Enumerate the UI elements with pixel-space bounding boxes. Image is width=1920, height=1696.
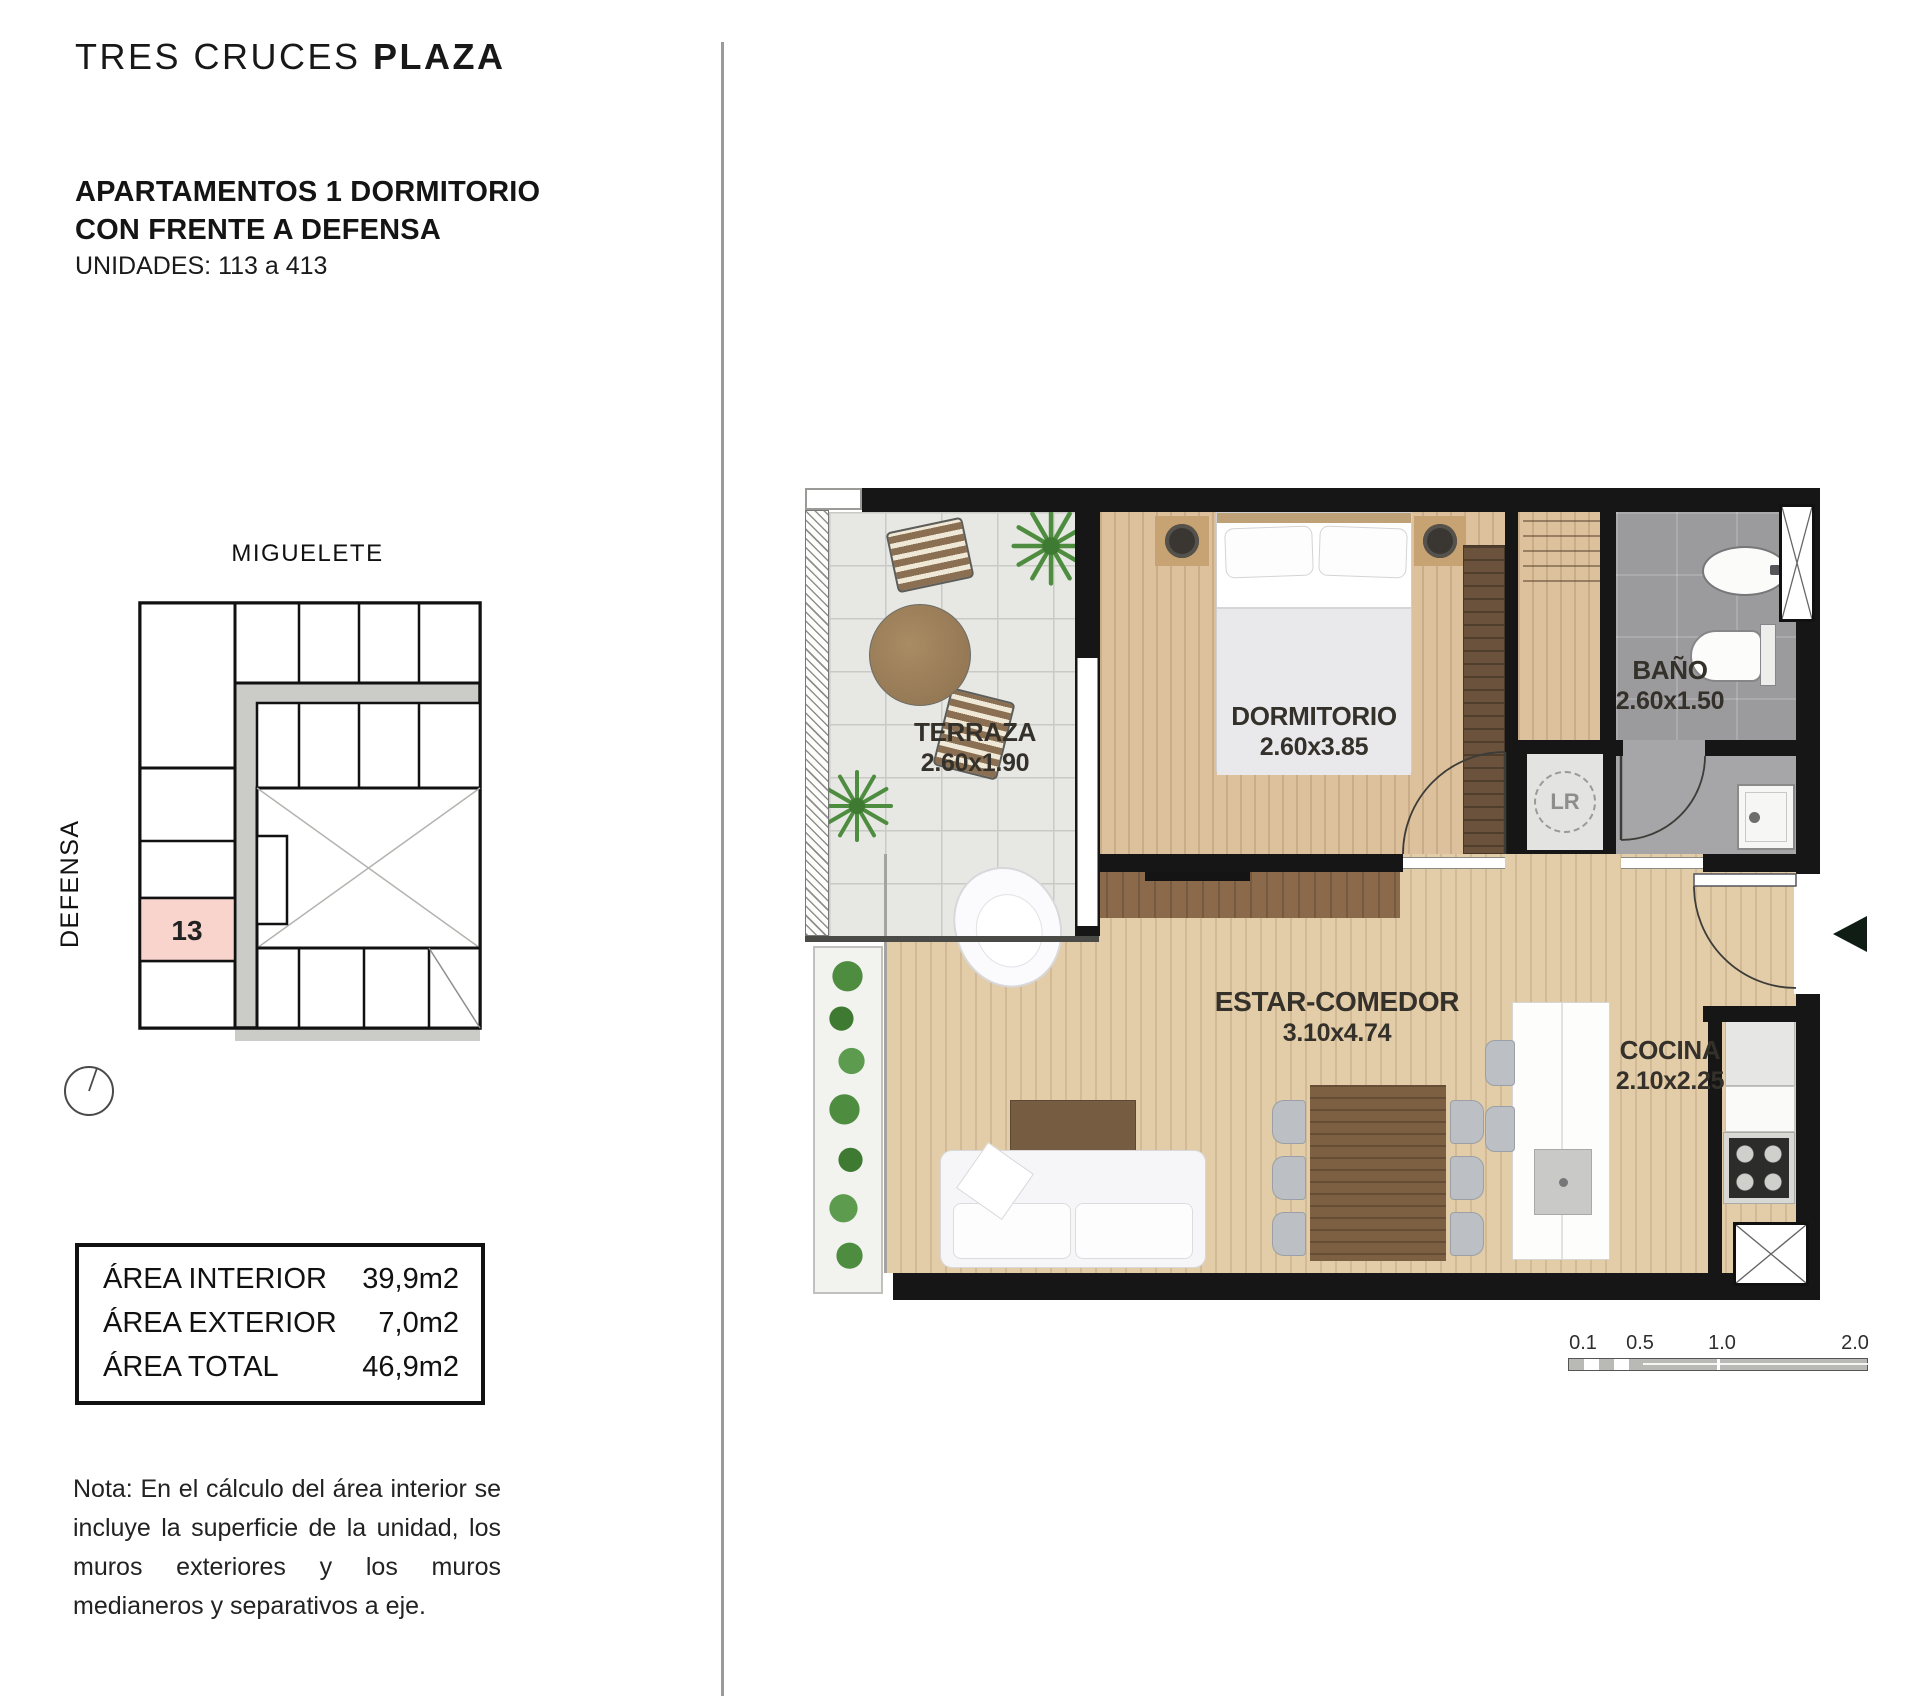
- brand-logo: TRES CRUCES PLAZA: [75, 36, 506, 78]
- dining-chair: [1272, 1156, 1306, 1200]
- planter: [813, 946, 883, 1294]
- area-value: 46,9m2: [362, 1345, 459, 1389]
- sink: [1702, 546, 1788, 596]
- headboard: [1217, 513, 1411, 523]
- planter-plants: [815, 948, 880, 1291]
- page: TRES CRUCES PLAZA APARTAMENTOS 1 DORMITO…: [0, 0, 1920, 1696]
- dining-table: [1310, 1085, 1446, 1261]
- wall: [1505, 512, 1518, 854]
- door-opening: [1623, 740, 1705, 756]
- glass-wall: [805, 936, 1099, 942]
- page-title-line1: APARTAMENTOS 1 DORMITORIO: [75, 176, 540, 209]
- vertical-divider: [721, 42, 724, 1696]
- door-sill: [1621, 857, 1703, 869]
- scale-tick-label: 1.0: [1708, 1332, 1736, 1355]
- toilet-tank: [1760, 624, 1776, 686]
- pillow: [1318, 525, 1408, 578]
- entry-opening: [1794, 874, 1820, 994]
- units-range: UNIDADES: 113 a 413: [75, 252, 327, 281]
- unit-13-label: 13: [171, 915, 202, 946]
- dining-chair: [1450, 1156, 1484, 1200]
- street-label-miguelete: MIGUELETE: [135, 540, 480, 568]
- closet-shelves: [1523, 520, 1611, 590]
- laundry-label: LR: [1534, 771, 1596, 833]
- room-label-estar: ESTAR-COMEDOR 3.10x4.74: [1182, 986, 1492, 1049]
- area-label: ÁREA EXTERIOR: [103, 1301, 337, 1345]
- brand-bold: PLAZA: [373, 36, 506, 77]
- wall: [862, 488, 1820, 512]
- burners-icon: [1729, 1138, 1789, 1198]
- wall: [1703, 854, 1796, 872]
- room-label-bano: BAÑO 2.60x1.50: [1595, 654, 1745, 717]
- table-row: ÁREA EXTERIOR 7,0m2: [103, 1301, 459, 1345]
- drain-icon: [1749, 812, 1760, 823]
- north-compass-icon: [60, 1062, 118, 1120]
- door-sill: [1403, 857, 1505, 869]
- area-label: ÁREA TOTAL: [103, 1345, 279, 1389]
- wall: [1703, 1006, 1796, 1022]
- entry-arrow-icon: [1833, 916, 1867, 952]
- area-value: 39,9m2: [362, 1257, 459, 1301]
- shaft: [1733, 1222, 1809, 1286]
- laundry-box: LR: [1527, 754, 1603, 850]
- lamp-icon: [1165, 524, 1199, 558]
- street-label-defensa: DEFENSA: [56, 758, 85, 948]
- scale-tick-label: 0.5: [1626, 1332, 1654, 1355]
- shaft: [1779, 504, 1815, 622]
- room-label-dormitorio: DORMITORIO 2.60x3.85: [1154, 700, 1474, 763]
- key-plan-diagram: 13: [135, 598, 487, 1048]
- area-value: 7,0m2: [378, 1301, 459, 1345]
- area-label: ÁREA INTERIOR: [103, 1257, 327, 1301]
- glass-wall: [884, 854, 887, 1273]
- dining-chair: [1272, 1100, 1306, 1144]
- room-label-terraza: TERRAZA 2.60x1.90: [855, 716, 1095, 779]
- dining-chair: [1450, 1100, 1484, 1144]
- scale-tick-label: 2.0: [1841, 1332, 1869, 1355]
- faucet-icon: [1559, 1178, 1568, 1187]
- terrace-railing: [805, 510, 829, 936]
- terrace-round-table: [869, 604, 971, 706]
- floor-plan: LR: [805, 488, 1820, 1300]
- dining-chair: [1450, 1212, 1484, 1256]
- scale-bar: [1568, 1358, 1868, 1371]
- wall: [893, 1273, 1820, 1300]
- note-text: Nota: En el cálculo del área interior se…: [73, 1470, 501, 1626]
- kitchen-sink: [1534, 1149, 1592, 1215]
- wall: [1099, 854, 1403, 872]
- stool: [1485, 1106, 1515, 1152]
- stove: [1723, 1132, 1795, 1204]
- shower-tray: [1737, 784, 1795, 850]
- pillow: [1224, 525, 1314, 578]
- table-row: ÁREA TOTAL 46,9m2: [103, 1345, 459, 1389]
- lamp-icon: [1423, 524, 1457, 558]
- sliding-door: [1077, 658, 1098, 926]
- scale-tick-label: 0.1: [1569, 1332, 1597, 1355]
- brand-regular: TRES CRUCES: [75, 36, 373, 77]
- lintel: [805, 488, 862, 510]
- dining-chair: [1272, 1212, 1306, 1256]
- area-table: ÁREA INTERIOR 39,9m2 ÁREA EXTERIOR 7,0m2…: [75, 1243, 485, 1405]
- sofa: [940, 1150, 1206, 1268]
- table-row: ÁREA INTERIOR 39,9m2: [103, 1257, 459, 1301]
- room-label-cocina: COCINA 2.10x2.25: [1570, 1034, 1770, 1097]
- scale-bar-labels: 0.1 0.5 1.0 2.0: [1568, 1332, 1868, 1356]
- page-title-line2: CON FRENTE A DEFENSA: [75, 214, 441, 247]
